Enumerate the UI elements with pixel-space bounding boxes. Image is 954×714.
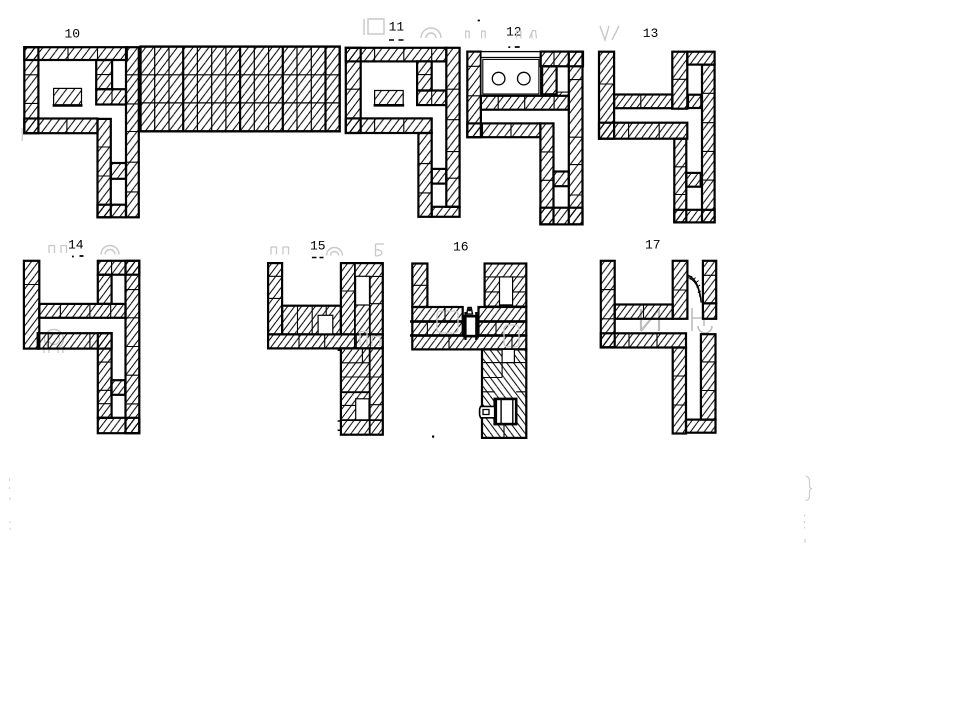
svg-text:12: 12	[506, 25, 522, 40]
svg-text:15: 15	[310, 239, 326, 254]
svg-text:17: 17	[645, 237, 661, 252]
svg-text:13: 13	[643, 26, 659, 41]
svg-text:10: 10	[65, 27, 81, 42]
svg-text:16: 16	[453, 240, 469, 255]
svg-text:11: 11	[389, 20, 405, 35]
svg-text:14: 14	[68, 237, 84, 252]
